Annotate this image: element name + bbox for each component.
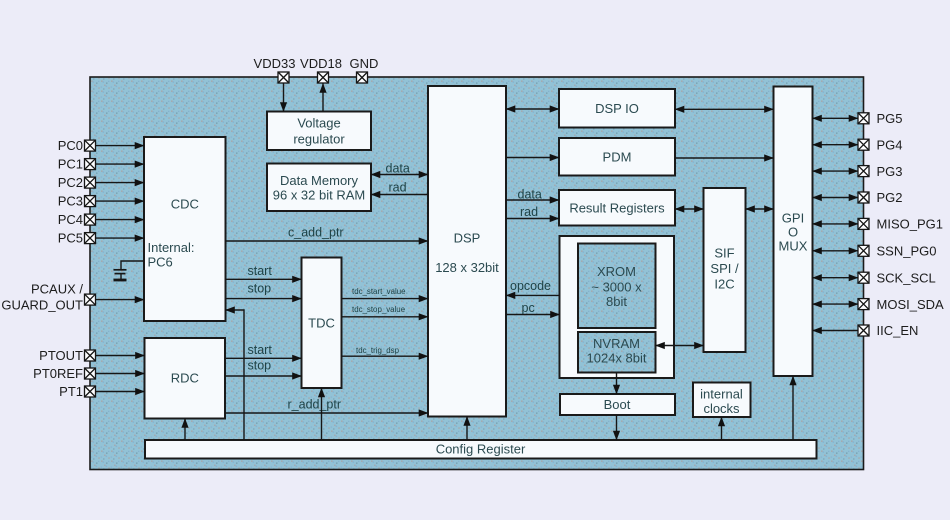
svg-text:~ 3000 x: ~ 3000 x [591, 280, 642, 295]
svg-text:NVRAM: NVRAM [593, 336, 640, 351]
svg-text:VDD18: VDD18 [300, 56, 342, 71]
svg-text:CDC: CDC [171, 197, 199, 212]
svg-text:rad: rad [520, 205, 538, 219]
svg-text:MUX: MUX [779, 239, 808, 254]
svg-text:PC0: PC0 [58, 138, 83, 153]
svg-text:VDD33: VDD33 [254, 56, 296, 71]
svg-text:IIC_EN: IIC_EN [877, 323, 919, 338]
svg-text:start: start [248, 264, 273, 278]
svg-text:PT1: PT1 [59, 384, 83, 399]
svg-text:tdc_trig_dsp: tdc_trig_dsp [356, 346, 400, 355]
svg-text:O: O [788, 225, 798, 240]
svg-text:regulator: regulator [293, 132, 345, 147]
svg-text:Internal:: Internal: [148, 240, 195, 255]
svg-text:8bit: 8bit [606, 294, 627, 309]
svg-text:PDM: PDM [603, 150, 632, 165]
svg-text:GND: GND [350, 56, 379, 71]
svg-text:PCAUX /: PCAUX / [31, 282, 83, 297]
svg-text:PG4: PG4 [877, 137, 903, 152]
svg-text:I2C: I2C [714, 277, 734, 292]
svg-text:internal: internal [700, 387, 743, 402]
svg-text:pc: pc [522, 301, 535, 315]
svg-text:r_add_ptr: r_add_ptr [288, 398, 342, 412]
svg-text:PT0REF: PT0REF [33, 366, 83, 381]
svg-text:SCK_SCL: SCK_SCL [877, 270, 936, 285]
svg-text:DSP: DSP [454, 231, 481, 246]
svg-text:MISO_PG1: MISO_PG1 [877, 217, 943, 232]
svg-text:rad: rad [389, 180, 407, 194]
svg-text:GUARD_OUT: GUARD_OUT [1, 298, 83, 313]
svg-text:SPI /: SPI / [710, 261, 739, 276]
svg-text:TDC: TDC [308, 316, 335, 331]
svg-text:128 x 32bit: 128 x 32bit [435, 260, 499, 275]
svg-text:MOSI_SDA: MOSI_SDA [877, 297, 945, 312]
svg-text:PTOUT: PTOUT [39, 348, 83, 363]
svg-text:tdc_stop_value: tdc_stop_value [352, 305, 406, 314]
svg-text:stop: stop [248, 359, 272, 373]
svg-text:PC4: PC4 [58, 212, 83, 227]
svg-text:data: data [518, 187, 542, 201]
svg-text:start: start [248, 343, 273, 357]
svg-text:PC3: PC3 [58, 194, 83, 209]
svg-text:tdc_start_value: tdc_start_value [352, 287, 406, 296]
svg-text:Voltage: Voltage [297, 116, 340, 131]
svg-text:XROM: XROM [597, 264, 636, 279]
svg-text:1024x 8bit: 1024x 8bit [587, 351, 647, 366]
svg-text:Boot: Boot [604, 397, 631, 412]
svg-text:opcode: opcode [510, 279, 551, 293]
svg-text:PC6: PC6 [148, 255, 173, 270]
svg-text:RDC: RDC [171, 371, 199, 386]
svg-text:PC1: PC1 [58, 157, 83, 172]
svg-text:c_add_ptr: c_add_ptr [288, 226, 344, 240]
svg-text:clocks: clocks [703, 401, 740, 416]
svg-text:PG3: PG3 [877, 164, 903, 179]
svg-text:PG5: PG5 [877, 111, 903, 126]
svg-text:SSN_PG0: SSN_PG0 [877, 244, 937, 259]
svg-text:data: data [386, 162, 410, 176]
svg-text:PC2: PC2 [58, 175, 83, 190]
svg-text:96 x 32 bit RAM: 96 x 32 bit RAM [273, 188, 366, 203]
svg-text:Config Register: Config Register [436, 442, 526, 457]
svg-text:Data Memory: Data Memory [280, 173, 359, 188]
svg-text:GPI: GPI [782, 211, 804, 226]
svg-text:PG2: PG2 [877, 190, 903, 205]
svg-text:PC5: PC5 [58, 231, 83, 246]
svg-text:SIF: SIF [714, 246, 734, 261]
svg-text:DSP IO: DSP IO [595, 101, 639, 116]
svg-text:stop: stop [248, 282, 272, 296]
svg-text:Result Registers: Result Registers [569, 201, 665, 216]
